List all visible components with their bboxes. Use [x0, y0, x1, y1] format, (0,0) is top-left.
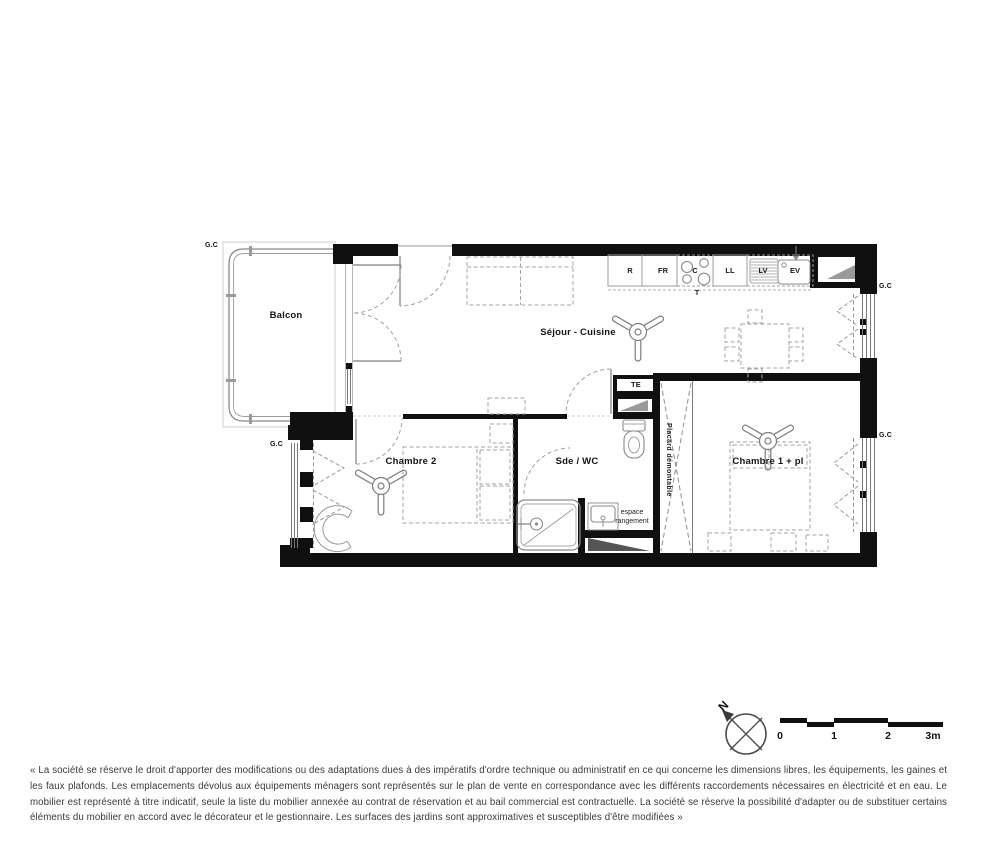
guard-rail-label-right-top: G.C — [879, 283, 892, 290]
floor-plan-page: Balcon Séjour - Cuisine Chambre 2 Sde / … — [0, 0, 1000, 857]
scale-tick-0: 0 — [777, 730, 783, 742]
sofa — [467, 257, 573, 305]
appliance-label-cooktop-sub: T — [695, 290, 699, 297]
storage-space-label: espace rangement — [609, 509, 655, 526]
room-label-balcony: Balcon — [270, 310, 303, 321]
room-label-bedroom2: Chambre 2 — [386, 456, 437, 467]
technical-duct-label: TE — [631, 380, 641, 389]
removable-closet-label: Placard démontable — [665, 423, 672, 497]
appliance-label-freezer: FR — [658, 266, 668, 275]
appliance-label-sink: EV — [790, 266, 800, 275]
ceiling-fan-icon — [354, 469, 407, 515]
bathtub-icon — [517, 500, 580, 550]
toilet-icon — [623, 420, 645, 458]
dining-table — [725, 310, 803, 382]
floor-plan-drawing — [0, 0, 1000, 857]
legal-disclaimer: « La société se réserve le droit d'appor… — [30, 763, 947, 826]
guard-rail-label-top-left: G.C — [205, 242, 218, 249]
scale-tick-1: 1 — [831, 730, 837, 742]
ceiling-fan-icon — [611, 315, 664, 361]
room-label-shower-wc: Sde / WC — [556, 456, 599, 467]
scale-tick-2: 2 — [885, 730, 891, 742]
room-label-bedroom1: Chambre 1 + pl — [732, 456, 803, 467]
compass-north-icon — [722, 710, 766, 754]
guard-rail-label-balcony-bottom: G.C — [270, 441, 283, 448]
appliance-label-fridge: R — [627, 266, 632, 275]
guard-rail-label-right-bottom: G.C — [879, 432, 892, 439]
bed-bedroom2 — [403, 424, 513, 523]
room-label-living-kitchen: Séjour - Cuisine — [540, 327, 616, 338]
tv-unit — [488, 398, 525, 414]
scale-bar — [780, 718, 943, 727]
balcony-railing — [223, 242, 335, 427]
duct-shafts — [588, 257, 855, 551]
walls — [280, 244, 877, 567]
appliance-label-dishwasher: LV — [758, 266, 767, 275]
scale-tick-3m: 3m — [925, 730, 940, 742]
appliance-label-cooktop: C — [692, 266, 697, 275]
appliance-label-washing-machine: LL — [725, 266, 734, 275]
